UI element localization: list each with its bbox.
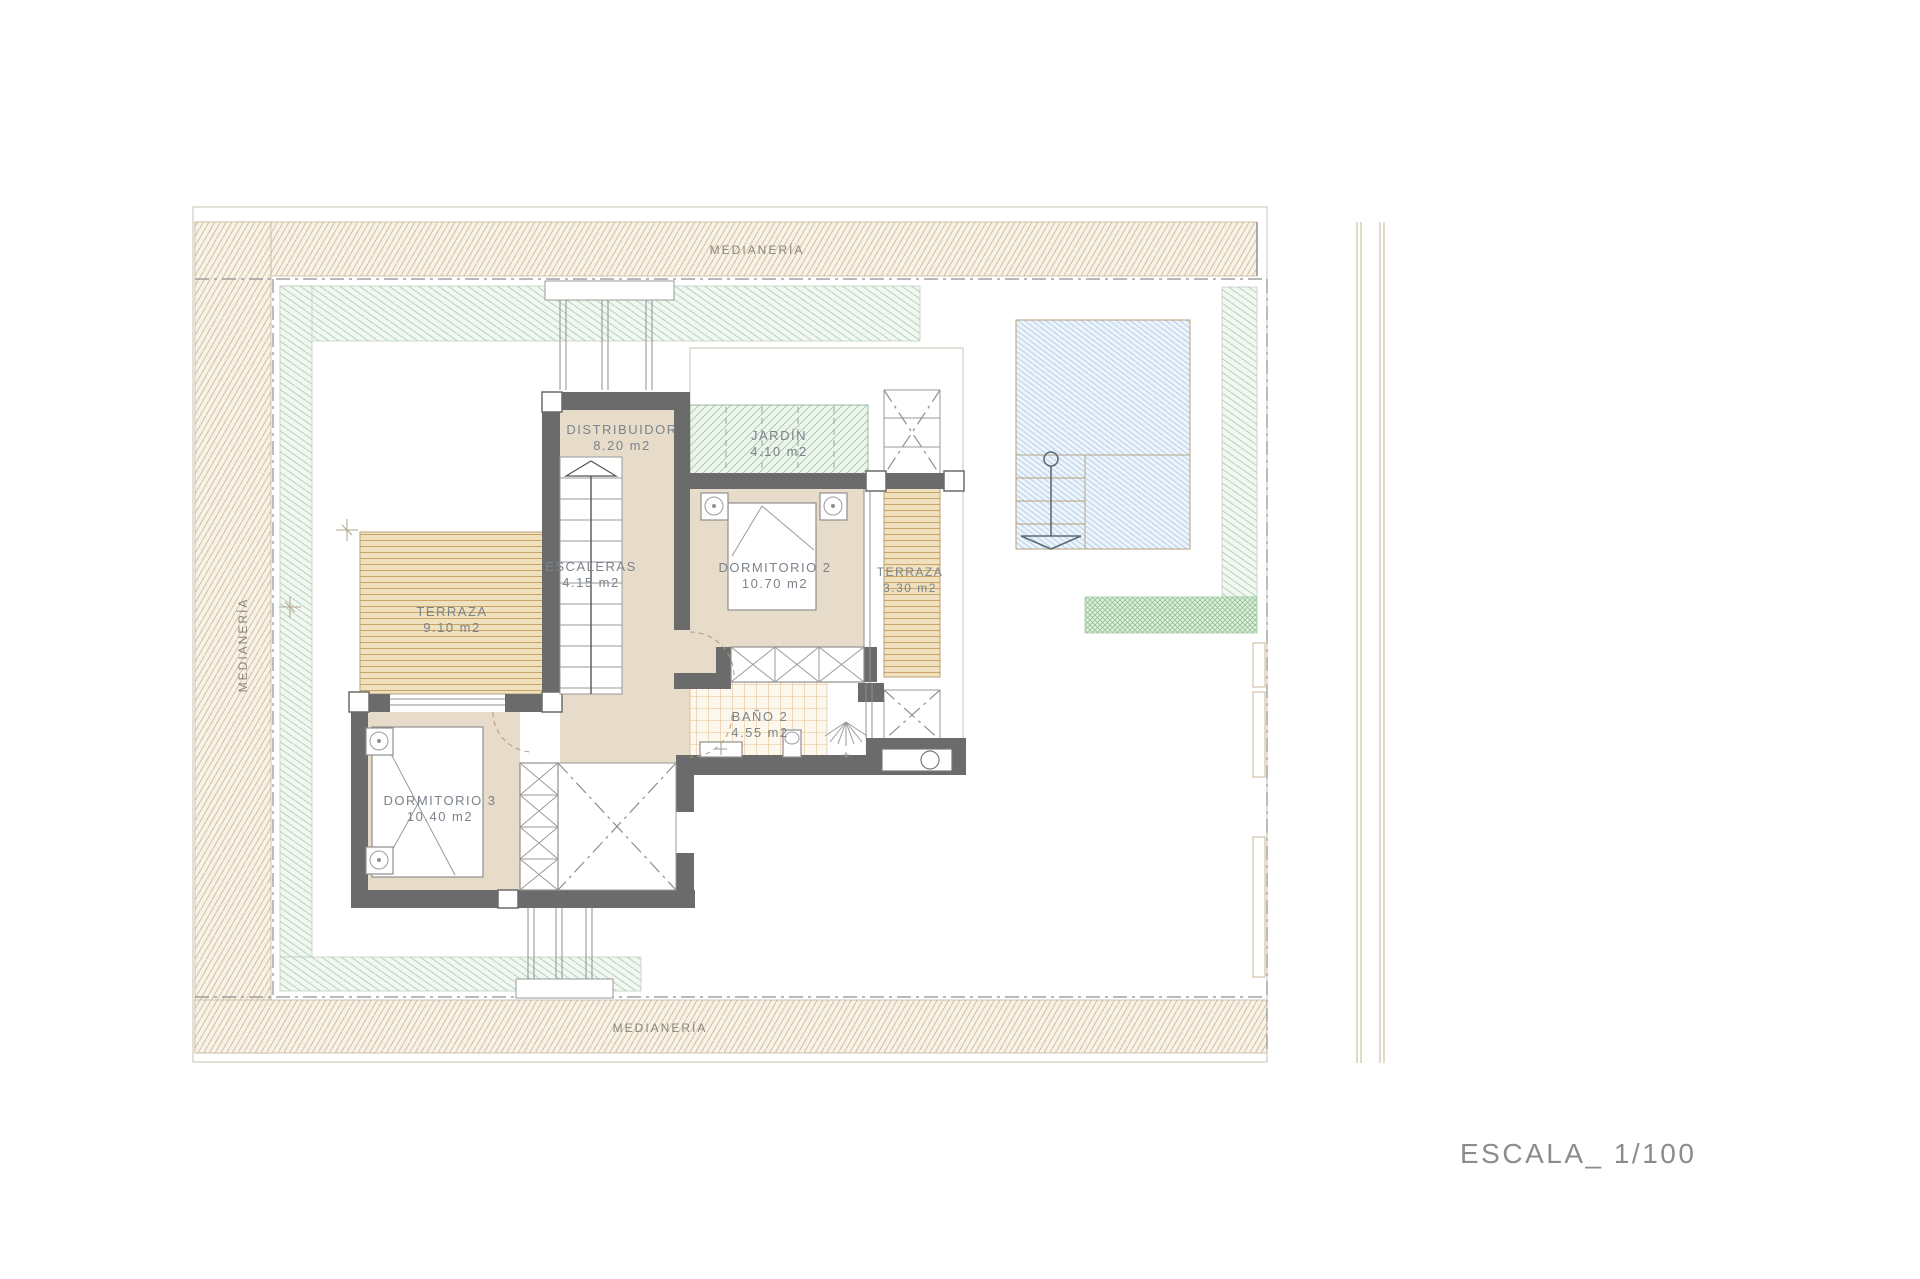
right-boundary-openings — [1253, 643, 1265, 977]
label-terraza1-area: 9.10 m2 — [423, 620, 480, 635]
label-dormitorio3-area: 10.40 m2 — [407, 809, 473, 824]
pool-water — [1016, 320, 1190, 549]
label-jardin-name: JARDÍN — [751, 428, 807, 443]
wardrobe-dorm2 — [731, 647, 864, 682]
label-medianeria-left: MEDIANERÍA — [235, 598, 250, 693]
floor-door-zone — [676, 628, 690, 765]
label-terraza2-name: TERRAZA — [877, 565, 944, 579]
bridge-bottom — [516, 908, 613, 998]
wardrobe-dorm3 — [520, 763, 558, 890]
label-escaleras-area: 4.15 m2 — [562, 575, 619, 590]
setback-strip-left — [280, 286, 312, 957]
scale-label: ESCALA_ 1/100 — [1460, 1138, 1696, 1169]
label-medianeria-top: MEDIANERÍA — [710, 242, 805, 257]
hedge-bar-right — [1085, 597, 1257, 633]
label-bano2-name: BAÑO 2 — [732, 709, 789, 724]
label-bano2-area: 4.55 m2 — [731, 725, 788, 740]
pool — [1016, 320, 1190, 549]
pergola-bottom — [884, 690, 940, 740]
label-escaleras-name: ESCALERAS — [545, 559, 637, 574]
label-distribuidor-area: 8.20 m2 — [593, 438, 650, 453]
label-terraza1-name: TERRAZA — [416, 604, 487, 619]
bridge-bottom-landing — [516, 979, 613, 998]
double-height-void — [558, 763, 676, 890]
bridge-top-landing — [545, 281, 674, 300]
floor-plan-page: DISTRIBUIDOR 8.20 m2 JARDÍN 4.10 m2 DORM… — [0, 0, 1920, 1279]
label-dormitorio2-area: 10.70 m2 — [742, 576, 808, 591]
party-wall-band-bottom — [195, 1000, 1267, 1053]
label-jardin-area: 4.10 m2 — [750, 444, 807, 459]
label-dormitorio2-name: DORMITORIO 2 — [718, 560, 831, 575]
label-terraza2-area: 3.30 m2 — [883, 581, 937, 595]
label-distribuidor-name: DISTRIBUIDOR — [566, 422, 677, 437]
party-wall-band-left — [195, 222, 271, 1053]
bathtub — [882, 749, 952, 771]
pergola-top — [884, 390, 940, 475]
neighbor-wall-lines — [1357, 222, 1384, 1063]
floor-plan-drawing: DISTRIBUIDOR 8.20 m2 JARDÍN 4.10 m2 DORM… — [0, 0, 1920, 1279]
label-medianeria-bottom: MEDIANERÍA — [613, 1020, 708, 1035]
setback-strip-right — [1222, 287, 1257, 597]
label-dormitorio3-name: DORMITORIO 3 — [383, 793, 496, 808]
